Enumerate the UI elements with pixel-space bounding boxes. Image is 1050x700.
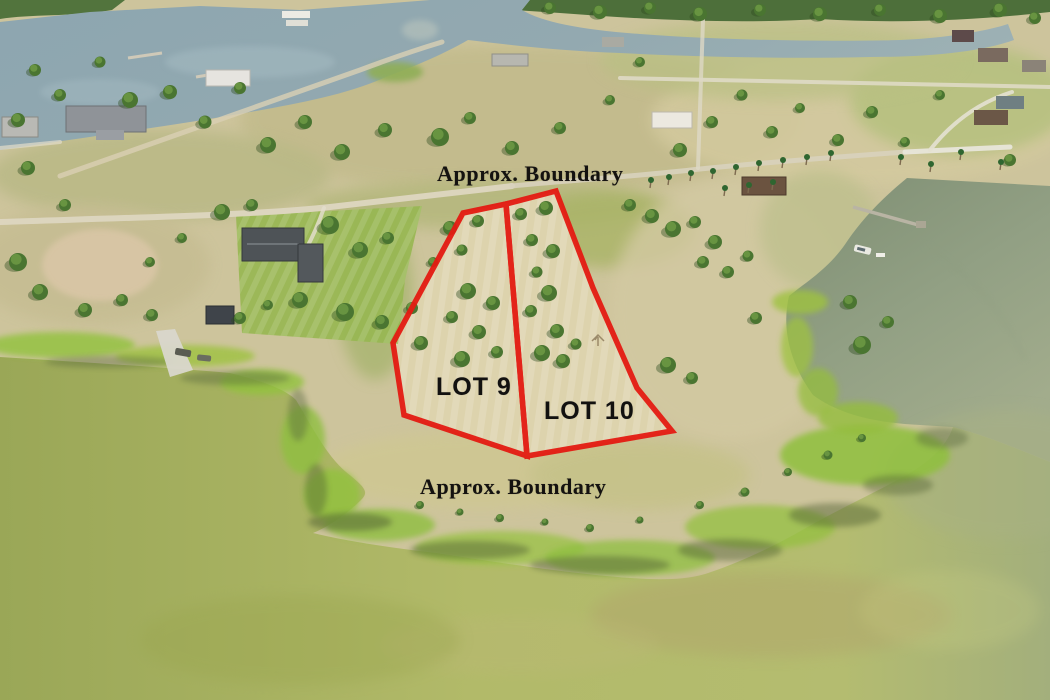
pavilion bbox=[602, 37, 624, 47]
house bbox=[492, 54, 528, 66]
lot9-label: LOT 9 bbox=[436, 373, 512, 402]
house bbox=[952, 30, 974, 42]
house bbox=[1022, 60, 1046, 72]
marina-shed bbox=[282, 11, 310, 18]
lot10-label: LOT 10 bbox=[544, 397, 635, 426]
approx-boundary-label-top: Approx. Boundary bbox=[437, 161, 623, 187]
house bbox=[978, 48, 1008, 62]
house bbox=[974, 110, 1008, 125]
approx-boundary-label-bottom: Approx. Boundary bbox=[420, 474, 606, 500]
scene bbox=[0, 0, 1050, 700]
aerial-photo: Approx. Boundary Approx. Boundary LOT 9 … bbox=[0, 0, 1050, 700]
shore-pavilion bbox=[206, 306, 234, 324]
swim-float bbox=[876, 253, 885, 257]
house bbox=[996, 96, 1024, 109]
estate-annex bbox=[298, 244, 323, 282]
house bbox=[652, 112, 692, 128]
marina-shed bbox=[286, 20, 308, 26]
house bbox=[66, 106, 146, 132]
